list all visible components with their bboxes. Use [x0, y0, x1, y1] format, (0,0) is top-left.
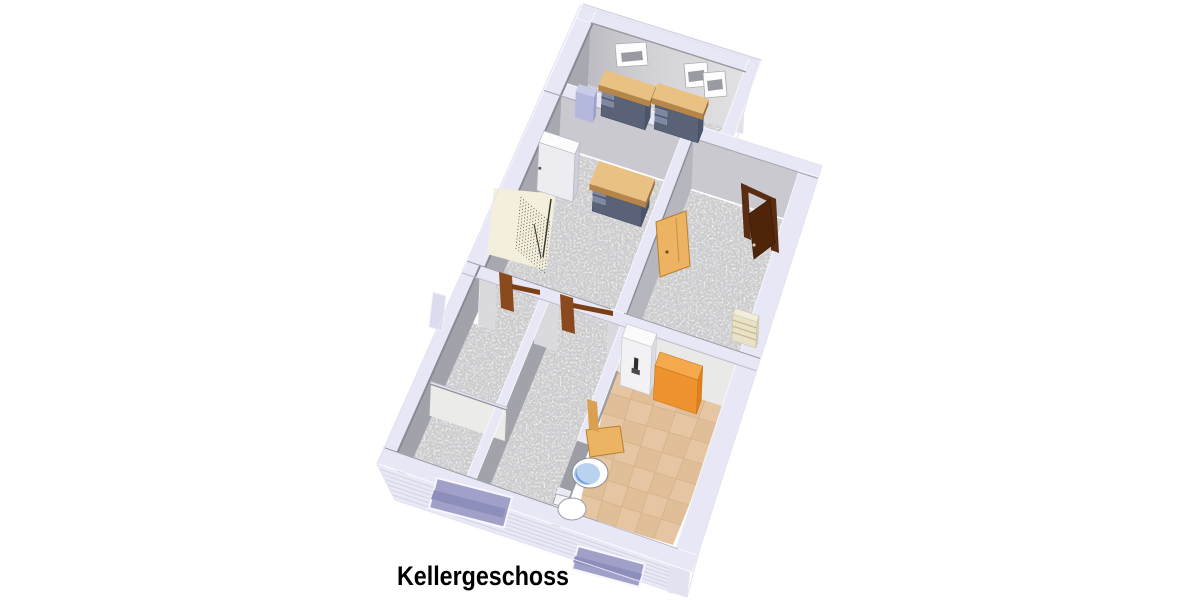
svg-text:Kellergeschoss: Kellergeschoss [397, 561, 569, 591]
